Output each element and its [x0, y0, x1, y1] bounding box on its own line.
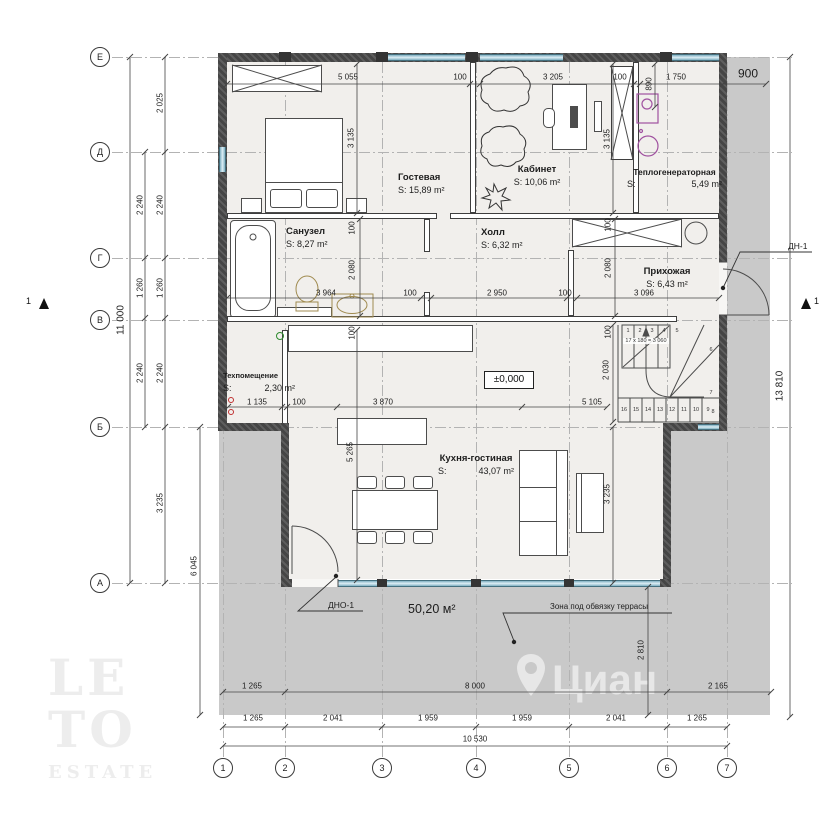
room-name: Санузел — [286, 226, 328, 238]
dim-line — [197, 712, 203, 718]
room-area: S: 10,06 m² — [502, 176, 572, 188]
area-value: 43,07 m² — [478, 465, 514, 477]
terrace-right-strip — [727, 57, 770, 427]
dim-label: 2 025 — [156, 93, 165, 113]
dim-label: 100 — [453, 73, 466, 82]
stair-formula: 17 х 180 = 3 060 — [623, 338, 669, 344]
dim-label: 3 235 — [603, 484, 612, 504]
dim-label: 1 265 — [242, 682, 262, 691]
side-table — [594, 101, 602, 132]
area-label: S: — [627, 178, 636, 190]
stair-step-number: 13 — [657, 407, 663, 413]
wardrobe — [232, 65, 322, 92]
terrace-area-label: 50,20 м² — [408, 602, 456, 616]
dim-label: 5 055 — [338, 73, 358, 82]
dim-label: 1 959 — [512, 714, 532, 723]
sofa-cushion-line — [519, 487, 556, 488]
hallway-wardrobe — [572, 219, 682, 247]
section-triangle-left — [39, 298, 49, 309]
chair — [385, 531, 405, 544]
chair — [385, 476, 405, 489]
room-name: Кухня-гостиная — [430, 453, 522, 465]
terrace-door-gap — [292, 579, 338, 587]
terrace-zone-label: Зона под обвязку террасы — [550, 602, 648, 611]
dim-label: 890 — [645, 77, 654, 90]
chair — [413, 531, 433, 544]
mullion-post — [377, 579, 387, 587]
mullion-post — [466, 52, 478, 62]
room-area: S: 8,27 m² — [286, 238, 328, 250]
dim-label: 100 — [613, 73, 626, 82]
dim-label: 1 265 — [243, 714, 263, 723]
dim-label: 3 135 — [347, 128, 356, 148]
grid-bubble-3: 3 — [372, 758, 392, 778]
mullion-post — [376, 52, 388, 62]
logo-letters: LE — [48, 652, 157, 704]
room-name: Гостевая — [398, 172, 445, 184]
bathtub-inner — [235, 225, 271, 311]
sofa-backrest — [556, 450, 557, 556]
entry-door-gap — [719, 262, 727, 315]
area-value: 2,30 m² — [264, 382, 295, 394]
stair-step-number: 8 — [711, 409, 714, 415]
dim-label: 100 — [348, 221, 357, 234]
room-name: Холл — [481, 227, 523, 239]
dim-label: 100 — [292, 398, 305, 407]
stair-step-number: 3 — [650, 328, 653, 334]
room-name: Кабинет — [502, 164, 572, 176]
dim-label: 2 240 — [136, 363, 145, 383]
dim-label: 100 — [558, 289, 571, 298]
room-area: S: 6,32 m² — [481, 239, 523, 251]
wall-bottom-a — [281, 579, 292, 587]
dim-label: 8 000 — [465, 682, 485, 691]
grid-bubble-Е: Е — [90, 47, 110, 67]
room-area: S: 15,89 m² — [398, 184, 445, 196]
wall-low-right — [663, 423, 671, 587]
wall-right-upper — [719, 53, 727, 262]
stair-step-number: 11 — [681, 407, 687, 413]
window-stair — [698, 424, 719, 430]
chair — [357, 476, 377, 489]
room-name: Теплогенераторная — [627, 166, 722, 178]
window-left-wall — [219, 147, 226, 172]
dim-label: 6 045 — [190, 556, 199, 576]
logo-subtitle: ESTATE — [48, 762, 157, 783]
stair-step-number: 5 — [675, 328, 678, 334]
dim-label: 900 — [738, 70, 758, 79]
wall-bathroom-right-b — [424, 292, 430, 316]
wall-hall-entry — [568, 250, 574, 316]
dim-label: 10 530 — [463, 735, 487, 744]
dim-label: 2 030 — [602, 360, 611, 380]
stair-step-number: 4 — [662, 328, 665, 334]
grid-bubble-4: 4 — [466, 758, 486, 778]
room-guest: Гостевая S: 15,89 m² — [398, 172, 445, 196]
floor-plan: LE TO ESTATE Циан ЕДГВБА1234567 5 055100… — [0, 0, 828, 824]
wall-right-lower — [719, 315, 727, 431]
room-name: Прихожая — [628, 266, 706, 278]
grid-bubble-2: 2 — [275, 758, 295, 778]
dim-label: 3 235 — [156, 493, 165, 513]
dim-label: 2 950 — [487, 289, 507, 298]
terrace-right-block — [671, 427, 770, 715]
grid-bubble-Г: Г — [90, 248, 110, 268]
area-label: S: — [438, 465, 447, 477]
location-pin-icon — [514, 650, 548, 702]
stair-step-number: 12 — [669, 407, 675, 413]
dim-label: 2 810 — [637, 640, 646, 660]
stair-step-number: 9 — [706, 407, 709, 413]
wall-bottom-b — [660, 579, 671, 587]
mullion-post — [564, 579, 574, 587]
room-boiler: Теплогенераторная S:5,49 m² — [627, 166, 722, 190]
pillow — [306, 189, 338, 208]
dim-label: 2 165 — [708, 682, 728, 691]
grid-axis-3 — [382, 62, 383, 758]
grid-axis-Г — [112, 258, 792, 259]
grid-axis-Д — [112, 152, 792, 153]
entry-door-label: ДН-1 — [788, 241, 807, 251]
desk-chair — [543, 108, 555, 128]
dim-label: 1 135 — [247, 398, 267, 407]
kitchen-counter — [288, 325, 473, 352]
dim-label: 100 — [348, 326, 357, 339]
room-kitchen-living: Кухня-гостиная S:43,07 m² — [430, 453, 522, 477]
dim-label: 11 000 — [117, 305, 126, 335]
sofa-cushion-line — [519, 521, 556, 522]
section-number: 1 — [26, 296, 31, 306]
leto-estate-watermark: LE TO ESTATE — [48, 652, 157, 783]
dim-label: 100 — [604, 325, 613, 338]
mullion-post — [279, 52, 291, 62]
dim-label: 2 240 — [136, 195, 145, 215]
dim-label: 100 — [604, 218, 613, 231]
mullion-post — [660, 52, 672, 62]
dim-label: 5 105 — [582, 398, 602, 407]
wall-office-bottom — [450, 213, 719, 219]
wall-bathroom-right-a — [424, 219, 430, 252]
room-office: Кабинет S: 10,06 m² — [502, 164, 572, 188]
dim-label: 3 135 — [603, 129, 612, 149]
bed-fold-line — [265, 182, 343, 183]
nightstand — [241, 198, 262, 213]
dim-label: 1 260 — [136, 278, 145, 298]
stair-step-number: 7 — [709, 390, 712, 396]
dim-label: 3 205 — [543, 73, 563, 82]
grid-bubble-В: В — [90, 310, 110, 330]
stair-step-number: 14 — [645, 407, 651, 413]
dim-line — [787, 714, 793, 720]
dim-label: 1 959 — [418, 714, 438, 723]
wall-b-left — [218, 423, 289, 431]
tv-line — [581, 473, 582, 533]
dim-label: 2 080 — [604, 258, 613, 278]
dim-label: 1 750 — [666, 73, 686, 82]
stair-step-number: 1 — [626, 328, 629, 334]
section-mark-left: 1 — [26, 296, 31, 306]
section-triangle-right — [801, 298, 811, 309]
level-mark: ±0,000 — [484, 371, 534, 389]
logo-letters: TO — [48, 704, 157, 756]
brand-text: Циан — [552, 658, 657, 702]
room-bathroom: Санузел S: 8,27 m² — [286, 226, 328, 250]
terrace-door-label: ДНО-1 — [328, 600, 354, 610]
dim-label: 13 810 — [776, 371, 785, 402]
dim-label: 1 265 — [687, 714, 707, 723]
sofa — [519, 450, 568, 556]
pillow — [270, 189, 302, 208]
grid-bubble-5: 5 — [559, 758, 579, 778]
stair-step-number: 16 — [621, 407, 627, 413]
wall-bedroom-bottom — [227, 213, 437, 219]
wall-office-boiler — [633, 62, 639, 213]
wall-low-left — [281, 423, 289, 587]
area-label: S: — [223, 382, 232, 394]
grid-bubble-7: 7 — [717, 758, 737, 778]
window-boiler — [667, 54, 719, 61]
terrace-left-notch — [219, 431, 281, 587]
chair — [357, 531, 377, 544]
grid-bubble-А: А — [90, 573, 110, 593]
kitchen-island — [337, 418, 427, 445]
grid-bubble-Б: Б — [90, 417, 110, 437]
mullion-post — [471, 579, 481, 587]
dim-label: 2 041 — [323, 714, 343, 723]
grid-bubble-6: 6 — [657, 758, 677, 778]
dim-label: 1 260 — [156, 278, 165, 298]
stair-step-number: 15 — [633, 407, 639, 413]
room-area: S: 6,43 m² — [628, 278, 706, 290]
room-name: Техпомещение — [223, 370, 295, 382]
dim-label: 5 265 — [346, 442, 355, 462]
section-mark-right: 1 — [814, 296, 819, 306]
window-office — [480, 54, 563, 61]
grid-bubble-1: 1 — [213, 758, 233, 778]
area-value: 5,49 m² — [691, 178, 722, 190]
room-entry: Прихожая S: 6,43 m² — [628, 266, 706, 290]
chair — [413, 476, 433, 489]
monitor — [570, 106, 578, 128]
stair-step-number: 2 — [638, 328, 641, 334]
section-number: 1 — [814, 296, 819, 306]
dim-label: 2 041 — [606, 714, 626, 723]
grid-bubble-Д: Д — [90, 142, 110, 162]
wall-row-v — [227, 316, 677, 322]
window-guest — [388, 54, 465, 61]
room-hall: Холл S: 6,32 m² — [481, 227, 523, 251]
dim-label: 3 870 — [373, 398, 393, 407]
dim-label: 2 240 — [156, 195, 165, 215]
nightstand — [346, 198, 367, 213]
dim-label: 3 964 — [316, 289, 336, 298]
wall-guest-office — [470, 62, 476, 213]
room-techroom: Техпомещение S:2,30 m² — [223, 370, 295, 394]
stair-step-number: 6 — [709, 347, 712, 353]
dim-label: 2 240 — [156, 363, 165, 383]
stair-step-number: 10 — [693, 407, 699, 413]
dining-table — [352, 490, 438, 530]
dim-label: 100 — [403, 289, 416, 298]
dim-label: 2 080 — [348, 260, 357, 280]
